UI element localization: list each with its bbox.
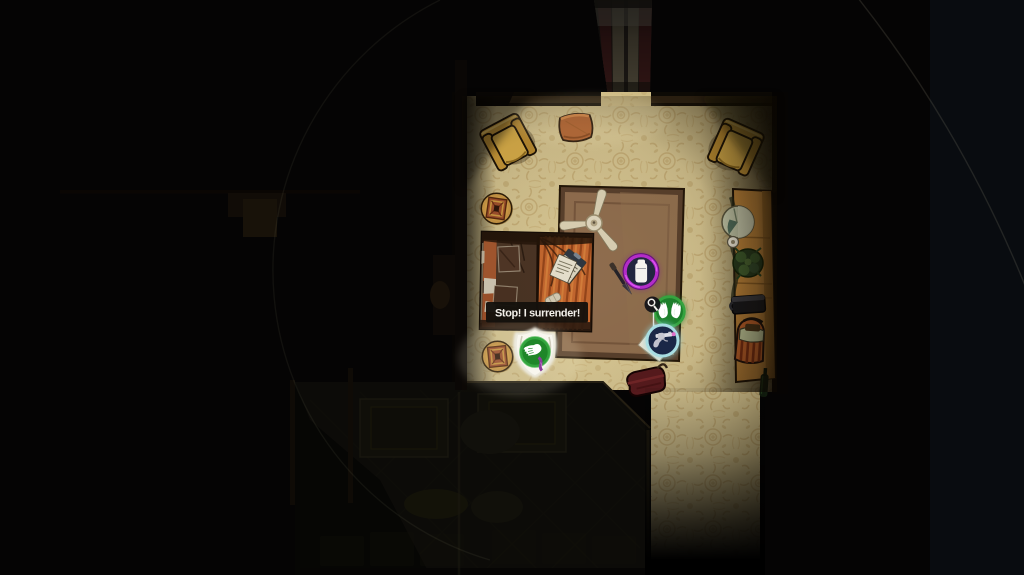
svg-text:Stop! I surrender!: Stop! I surrender!	[495, 308, 580, 320]
